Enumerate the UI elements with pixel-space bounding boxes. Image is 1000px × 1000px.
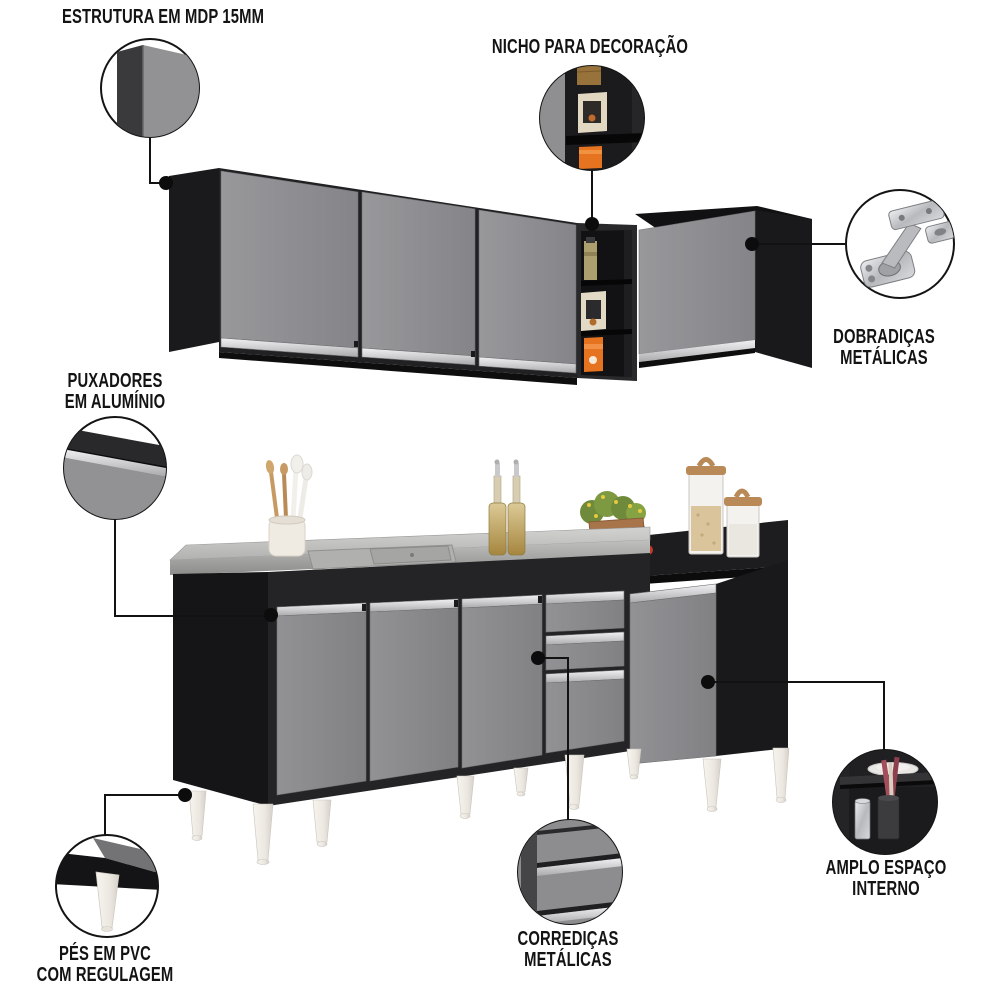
kitchen-cabinet-scene <box>0 0 1000 1000</box>
label-dobradicas: DOBRADIÇAS METÁLICAS <box>795 327 973 369</box>
label-line: AMPLO ESPAÇO <box>797 858 975 879</box>
upper-doors <box>221 171 576 373</box>
lower-cabinet <box>170 455 789 865</box>
callout-puxadores <box>61 417 170 525</box>
label-line: DOBRADIÇAS <box>795 327 973 348</box>
panel-corner-detail <box>117 45 200 140</box>
label-line: NICHO PARA DECORAÇÃO <box>479 37 701 58</box>
upper-niche <box>577 223 637 381</box>
label-line: COM REGULAGEM <box>16 965 194 986</box>
label-line: INTERNO <box>797 879 975 900</box>
label-line: PUXADORES <box>26 371 204 392</box>
callout-estrutura <box>101 39 200 140</box>
glass-jar-short <box>724 491 762 557</box>
glass-jar-tall <box>686 460 726 555</box>
label-line: PÉS EM PVC <box>16 944 194 965</box>
callout-nicho <box>539 64 646 172</box>
line-pes <box>105 795 180 835</box>
label-pes: PÉS EM PVC COM REGULAGEM <box>16 944 194 986</box>
dot-nicho <box>585 217 599 231</box>
label-estrutura: ESTRUTURA EM MDP 15MM <box>52 7 274 28</box>
utensil-pot <box>265 455 312 556</box>
label-line: EM ALUMÍNIO <box>26 392 204 413</box>
label-line: CORREDIÇAS <box>479 929 657 950</box>
product-infographic: ESTRUTURA EM MDP 15MM NICHO PARA DECORAÇ… <box>0 0 1000 1000</box>
dot-puxadores <box>264 608 278 622</box>
label-line: METÁLICAS <box>479 950 657 971</box>
lower-corner-unit <box>630 560 788 764</box>
callout-dobradicas <box>846 190 963 298</box>
label-corredicas: CORREDIÇAS METÁLICAS <box>479 929 657 971</box>
dot-corredicas <box>531 651 545 665</box>
line-estrutura <box>150 138 160 183</box>
upper-cabinet <box>169 168 812 385</box>
dot-estrutura <box>159 176 173 190</box>
upper-corner-unit <box>639 210 812 368</box>
callout-pes <box>52 835 162 937</box>
label-line: METÁLICAS <box>795 348 973 369</box>
callout-amplo <box>832 749 938 855</box>
upper-left-side-panel <box>169 168 219 352</box>
label-amplo: AMPLO ESPAÇO INTERNO <box>797 858 975 900</box>
label-line: ESTRUTURA EM MDP 15MM <box>52 7 274 28</box>
lower-left-side-panel <box>173 572 268 806</box>
label-puxadores: PUXADORES EM ALUMÍNIO <box>26 371 204 413</box>
callout-corredicas <box>517 819 623 925</box>
dot-amplo <box>701 675 715 689</box>
dot-dobradicas <box>745 237 759 251</box>
label-nicho: NICHO PARA DECORAÇÃO <box>479 37 701 58</box>
dot-pes <box>178 788 192 802</box>
